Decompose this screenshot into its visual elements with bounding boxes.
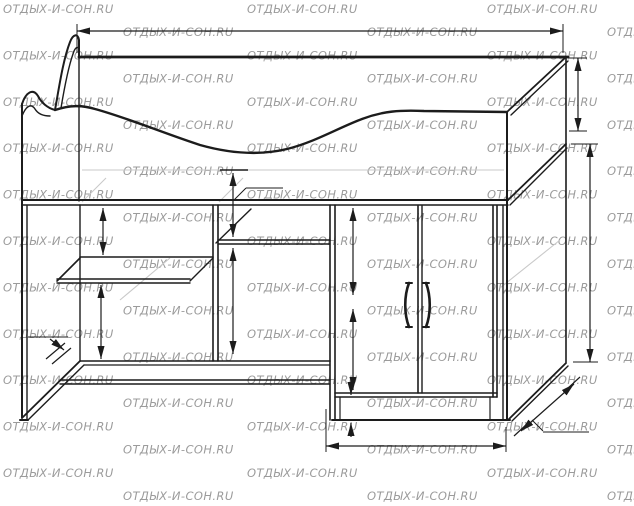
watermark-text: ОТДЫХ-И-СОН.RU [487, 48, 598, 62]
dim-label-niche-top-gap: 210 [246, 164, 283, 189]
watermark-text: ОТДЫХ-И-СОН.RU [247, 48, 358, 62]
watermark-text: ОТДЫХ-И-СОН.RU [247, 327, 358, 341]
watermark-text: ОТДЫХ-И-СОН.RU [3, 95, 114, 109]
watermark-text: ОТДЫХ-И-СОН.RU [607, 164, 634, 178]
watermark-text: ОТДЫХ-И-СОН.RU [367, 164, 478, 178]
watermark-text: ОТДЫХ-И-СОН.RU [3, 2, 114, 16]
watermark-text: ОТДЫХ-И-СОН.RU [607, 25, 634, 39]
watermark-text: ОТДЫХ-И-СОН.RU [123, 489, 234, 503]
loft-bed-dimension-drawing: ОТДЫХ-И-СОН.RUОТДЫХ-И-СОН.RUОТДЫХ-И-СОН.… [0, 0, 634, 506]
hidden-corner-middle [219, 178, 243, 202]
watermark-text: ОТДЫХ-И-СОН.RU [607, 118, 634, 132]
watermark-text: ОТДЫХ-И-СОН.RU [607, 489, 634, 503]
structure-layer [20, 35, 568, 421]
watermark-text: ОТДЫХ-И-СОН.RU [367, 25, 478, 39]
watermark-text: ОТДЫХ-И-СОН.RU [3, 48, 114, 62]
watermark-text: ОТДЫХ-И-СОН.RU [123, 164, 234, 178]
watermark-text: ОТДЫХ-И-СОН.RU [123, 25, 234, 39]
watermark-text: ОТДЫХ-И-СОН.RU [3, 234, 114, 248]
watermark-text: ОТДЫХ-И-СОН.RU [3, 420, 114, 434]
watermark-text: ОТДЫХ-И-СОН.RU [367, 443, 478, 457]
drawing-canvas: ОТДЫХ-И-СОН.RUОТДЫХ-И-СОН.RUОТДЫХ-И-СОН.… [0, 0, 634, 506]
watermark-text: ОТДЫХ-И-СОН.RU [487, 95, 598, 109]
watermark-text: ОТДЫХ-И-СОН.RU [367, 71, 478, 85]
watermark-text: ОТДЫХ-И-СОН.RU [247, 466, 358, 480]
watermark-text: ОТДЫХ-И-СОН.RU [487, 2, 598, 16]
watermark-text: ОТДЫХ-И-СОН.RU [3, 327, 114, 341]
watermark-text: ОТДЫХ-И-СОН.RU [247, 234, 358, 248]
watermark-text: ОТДЫХ-И-СОН.RU [3, 466, 114, 480]
watermark-text: ОТДЫХ-И-СОН.RU [607, 211, 634, 225]
base-oblique [23, 361, 80, 417]
watermark-text: ОТДЫХ-И-СОН.RU [607, 443, 634, 457]
watermark-text: ОТДЫХ-И-СОН.RU [3, 141, 114, 155]
watermark-text: ОТДЫХ-И-СОН.RU [247, 420, 358, 434]
dim-left-niche-height: 210 [70, 285, 101, 359]
watermark-text: ОТДЫХ-И-СОН.RU [247, 95, 358, 109]
left-shelf-oblique-left [57, 258, 80, 281]
watermark-text: ОТДЫХ-И-СОН.RU [607, 71, 634, 85]
watermark-text: ОТДЫХ-И-СОН.RU [367, 118, 478, 132]
watermark-text: ОТДЫХ-И-СОН.RU [607, 350, 634, 364]
bottom-right-edge [509, 363, 566, 419]
watermark-text: ОТДЫХ-И-СОН.RU [123, 396, 234, 410]
watermark-text: ОТДЫХ-И-СОН.RU [123, 71, 234, 85]
watermark-text: ОТДЫХ-И-СОН.RU [367, 489, 478, 503]
watermark-text: ОТДЫХ-И-СОН.RU [247, 2, 358, 16]
watermark-text: ОТДЫХ-И-СОН.RU [247, 280, 358, 294]
watermark-text: ОТДЫХ-И-СОН.RU [123, 443, 234, 457]
watermark-text: ОТДЫХ-И-СОН.RU [487, 141, 598, 155]
watermark-text: ОТДЫХ-И-СОН.RU [487, 466, 598, 480]
watermark-text: ОТДЫХ-И-СОН.RU [607, 303, 634, 317]
watermark-text: ОТДЫХ-И-СОН.RU [607, 257, 634, 271]
watermark-text: ОТДЫХ-И-СОН.RU [607, 396, 634, 410]
watermark-text: ОТДЫХ-И-СОН.RU [367, 396, 478, 410]
